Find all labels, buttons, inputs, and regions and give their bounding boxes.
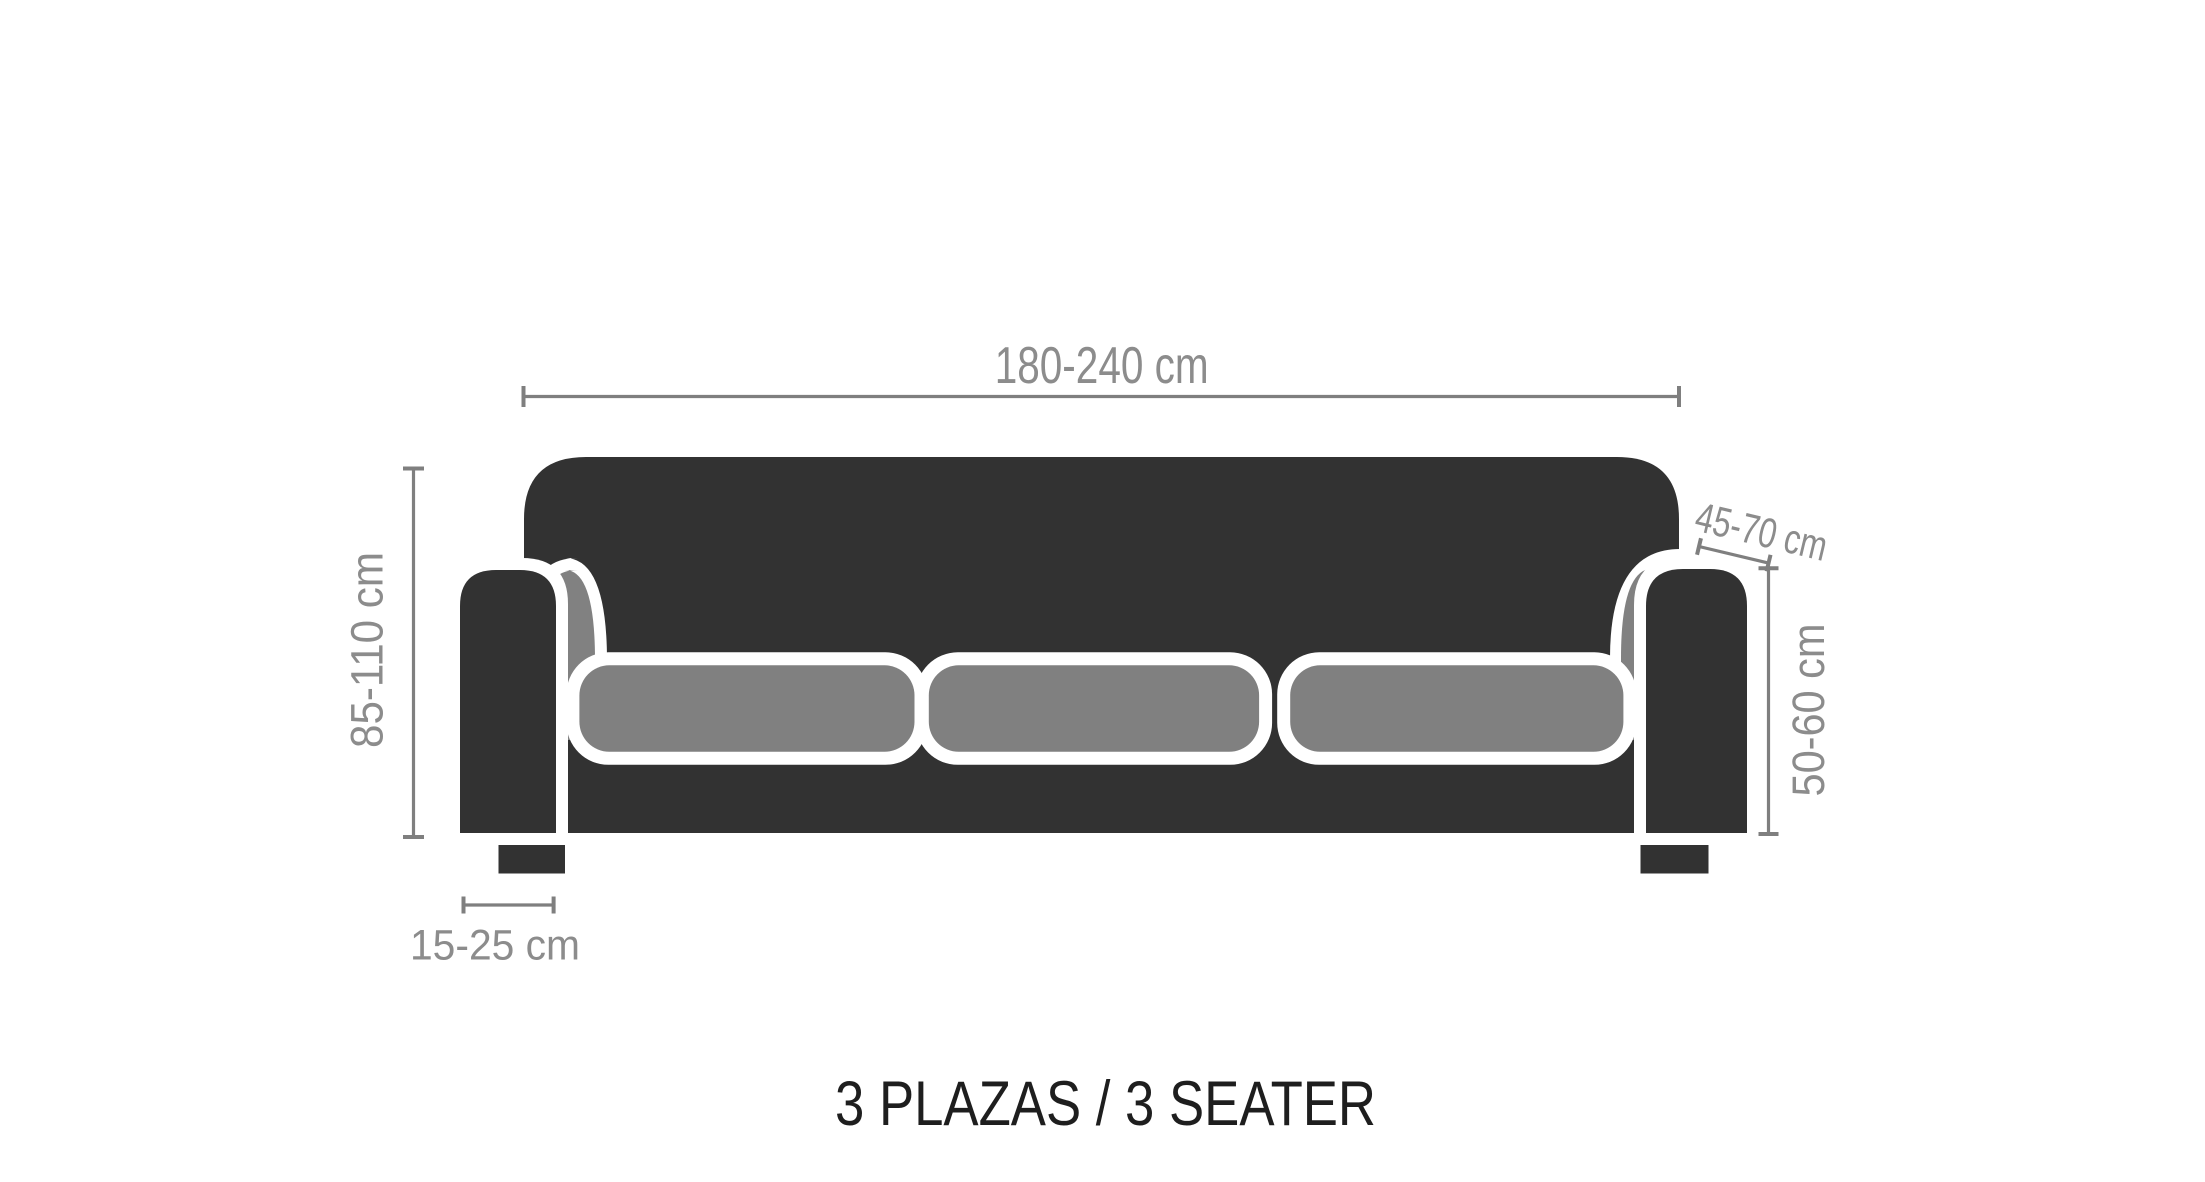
svg-text:15-25 cm: 15-25 cm (410, 922, 580, 970)
svg-text:180-240 cm: 180-240 cm (995, 337, 1209, 395)
svg-text:85-110 cm: 85-110 cm (342, 552, 393, 748)
svg-text:50-60 cm: 50-60 cm (1783, 624, 1834, 797)
svg-text:3 PLAZAS / 3 SEATER: 3 PLAZAS / 3 SEATER (835, 1069, 1376, 1139)
